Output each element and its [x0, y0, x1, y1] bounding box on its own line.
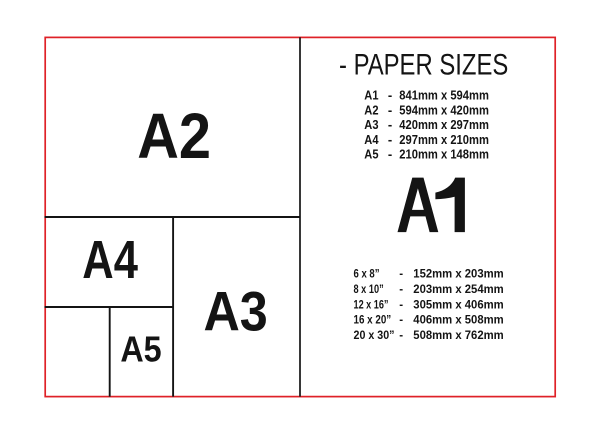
svg-text:-: - [399, 330, 403, 342]
svg-text:-: - [388, 147, 392, 162]
svg-text:- PAPER SIZES: - PAPER SIZES [339, 48, 508, 81]
svg-text:841mm x 594mm: 841mm x 594mm [399, 88, 489, 103]
svg-text:-: - [399, 269, 403, 281]
svg-text:305mm x 406mm: 305mm x 406mm [413, 299, 503, 311]
svg-text:508mm x 762mm: 508mm x 762mm [413, 330, 503, 342]
svg-text:-: - [399, 315, 403, 327]
svg-text:-: - [399, 284, 403, 296]
svg-text:A3: A3 [203, 281, 267, 343]
svg-text:-: - [388, 117, 392, 132]
svg-text:-: - [388, 102, 392, 117]
svg-text:-: - [388, 132, 392, 147]
svg-text:A5: A5 [364, 147, 378, 162]
svg-text:12 x 16”: 12 x 16” [354, 299, 389, 311]
svg-text:-: - [399, 299, 403, 311]
svg-text:6 x 8”: 6 x 8” [354, 269, 380, 281]
svg-text:-: - [388, 88, 392, 103]
svg-text:16 x 20”: 16 x 20” [354, 315, 392, 327]
svg-text:297mm x 210mm: 297mm x 210mm [399, 132, 489, 147]
svg-text:A3: A3 [364, 117, 378, 132]
svg-text:203mm x 254mm: 203mm x 254mm [413, 284, 503, 296]
svg-text:A4: A4 [364, 132, 379, 147]
svg-text:152mm x 203mm: 152mm x 203mm [413, 269, 503, 281]
svg-text:420mm x 297mm: 420mm x 297mm [399, 117, 489, 132]
svg-text:A4: A4 [82, 230, 138, 290]
svg-text:406mm x 508mm: 406mm x 508mm [413, 315, 503, 327]
svg-text:A5: A5 [120, 329, 161, 369]
svg-text:A1: A1 [364, 88, 378, 103]
svg-text:8 x 10”: 8 x 10” [354, 284, 384, 296]
svg-text:A2: A2 [364, 102, 378, 117]
svg-text:210mm x 148mm: 210mm x 148mm [399, 147, 489, 162]
svg-text:20 x 30”: 20 x 30” [354, 330, 395, 342]
svg-text:A2: A2 [137, 100, 211, 172]
svg-text:594mm x 420mm: 594mm x 420mm [399, 102, 489, 117]
